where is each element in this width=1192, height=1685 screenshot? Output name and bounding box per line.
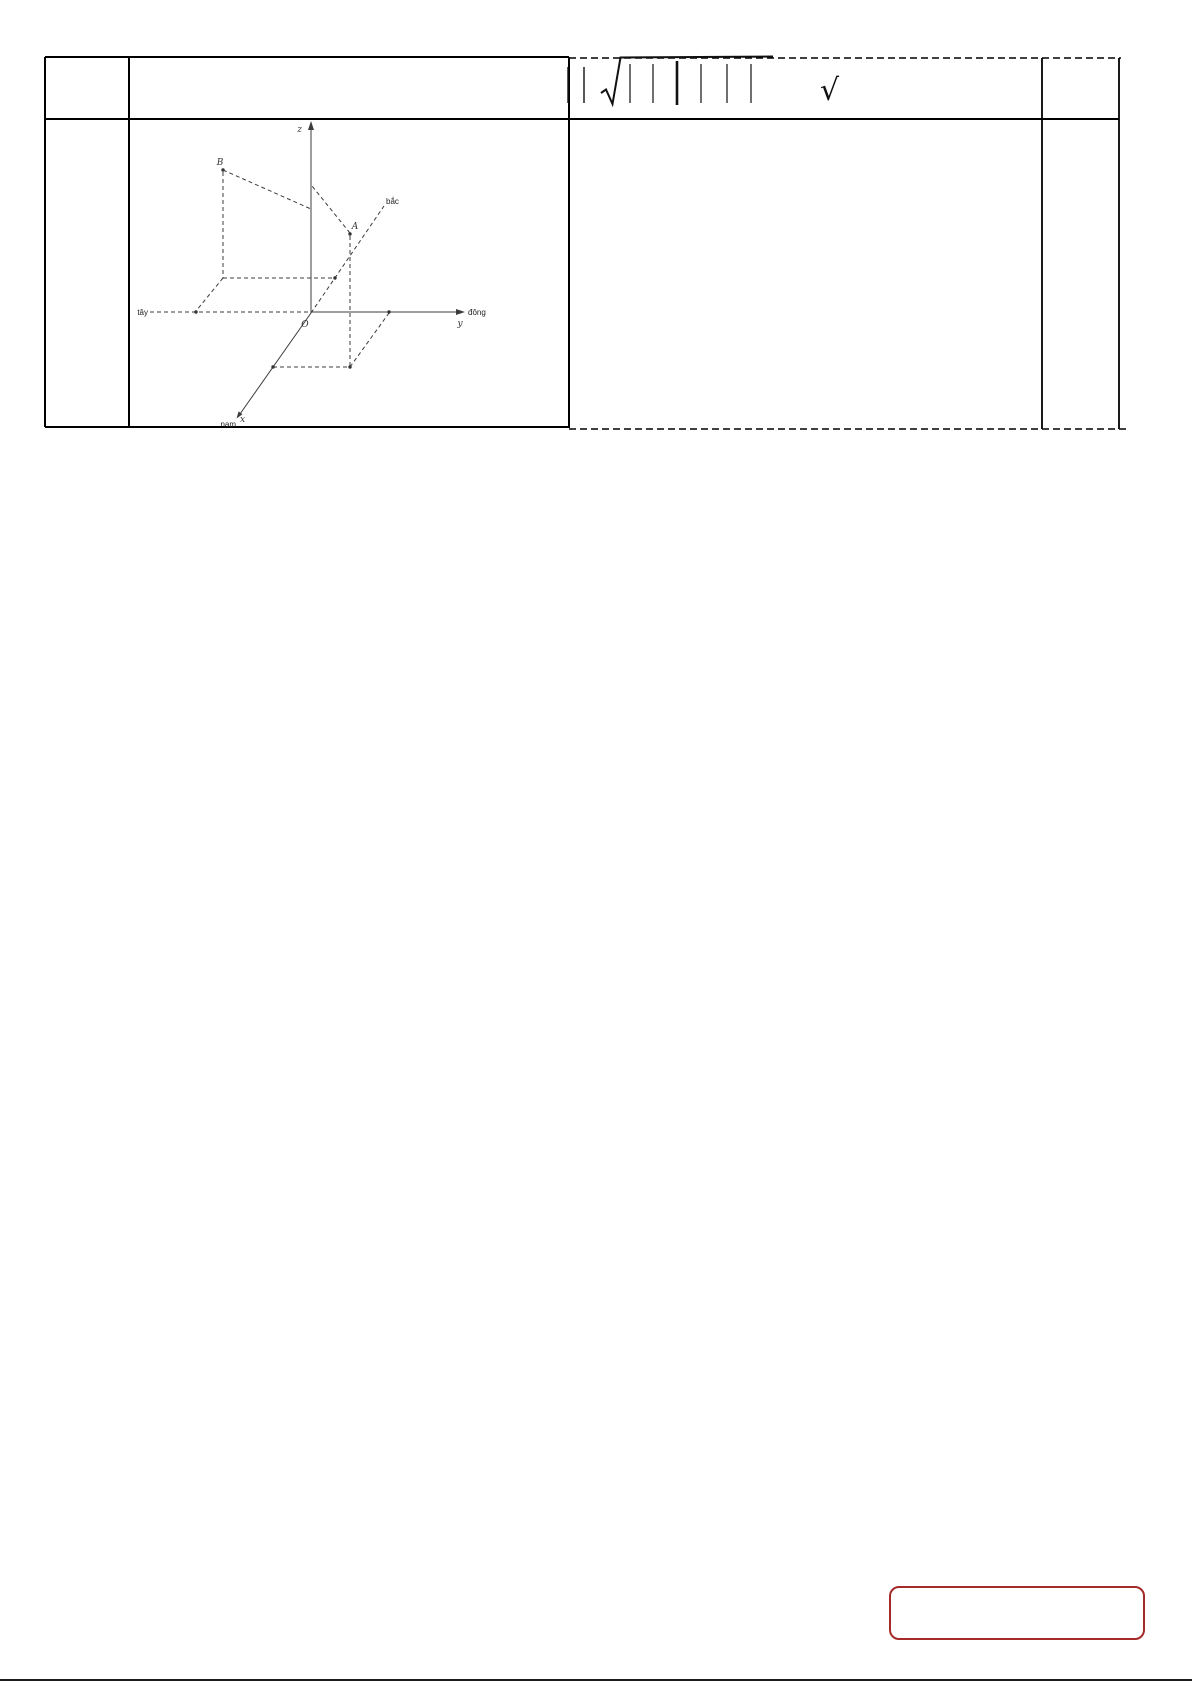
radical-sign-small: √ [820,73,840,108]
y-axis-arrowhead-icon [456,309,465,315]
table-and-diagram: √ [0,0,1192,450]
table-borders [45,57,1126,429]
point-b-base-to-west-line [196,278,223,311]
y-axis-label: y [456,319,463,329]
point-b-to-z-axis [223,170,311,209]
page-bottom-rule [0,1679,1192,1681]
coordinate-diagram: z y x O A B bắc tây đông nam [137,121,485,429]
compass-north-label: bắc [386,197,399,206]
point-b-dot [221,168,224,171]
point-a-to-z-axis [312,186,350,233]
z-axis-arrowhead-icon [308,121,314,130]
point-a-label: A [351,222,359,232]
document-page: √ [0,0,1192,1685]
north-line-dot [333,276,336,279]
origin-label: O [301,320,309,330]
radical-sign [601,57,773,105]
x-axis-label: x [240,415,245,425]
compass-west-label: tây [137,308,148,317]
point-a-ground-dot [348,365,351,368]
compass-east-label: đông [468,308,486,317]
north-dashed-line [311,206,384,313]
x-axis-intersection-dot [271,365,274,368]
compass-south-label: nam [220,420,236,429]
formula-fragment: √ [568,57,840,109]
point-a-dot [348,232,351,235]
point-a-base-to-y-axis [350,313,389,367]
annotation-box [889,1586,1145,1640]
y-axis-intersection-dot [387,310,390,313]
z-axis-label: z [296,125,302,135]
point-b-label: B [216,158,224,168]
west-line-dot [194,310,197,313]
